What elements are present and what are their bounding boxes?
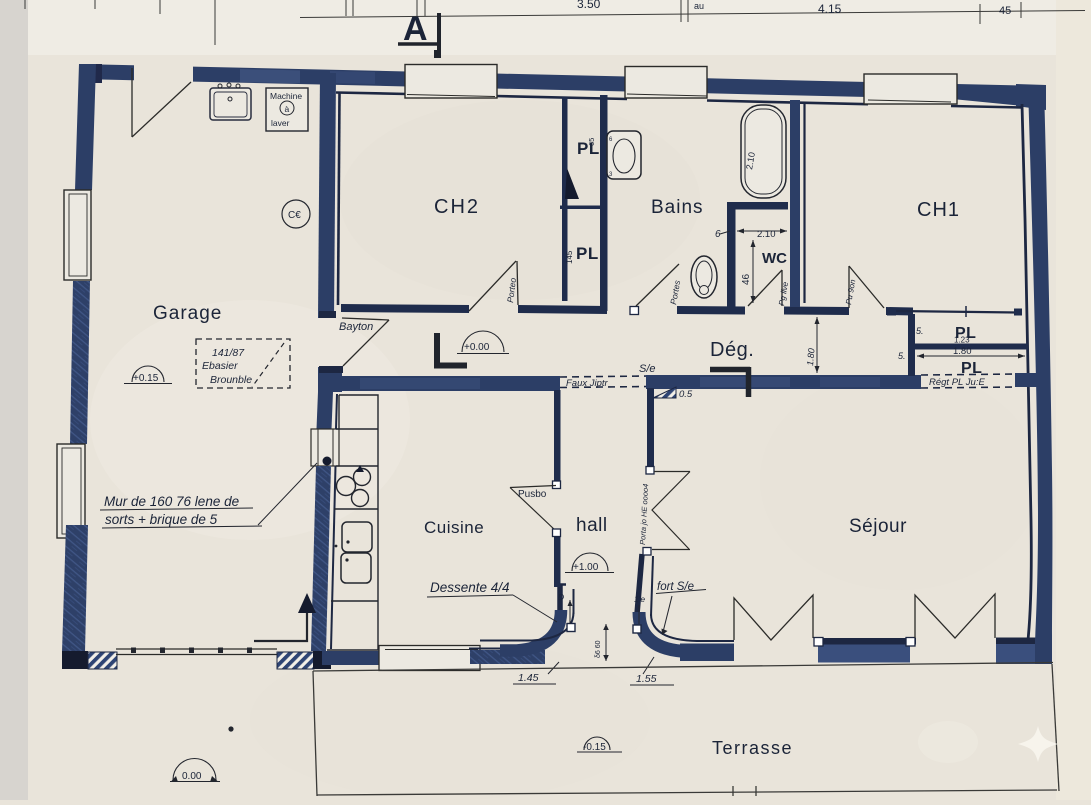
svg-text:D: D — [558, 592, 564, 602]
svg-text:+1.00: +1.00 — [573, 562, 599, 573]
svg-text:WC: WC — [762, 250, 787, 267]
svg-text:au: au — [694, 1, 704, 11]
svg-text:Mur de 160 76 lene de: Mur de 160 76 lene de — [104, 494, 239, 509]
svg-text:0.00: 0.00 — [182, 771, 202, 782]
svg-text:CH1: CH1 — [917, 199, 960, 221]
svg-text:laver: laver — [271, 118, 290, 128]
svg-text:1.23: 1.23 — [954, 336, 970, 345]
svg-text:1'e: 1'e — [634, 594, 645, 604]
svg-text:Pusbo: Pusbo — [518, 489, 547, 500]
svg-text:Régt PL Ju:E: Régt PL Ju:E — [929, 377, 985, 388]
svg-text:3.50: 3.50 — [577, 0, 601, 11]
svg-text:1.45: 1.45 — [518, 672, 539, 684]
svg-text:45: 45 — [999, 5, 1011, 17]
svg-text:5.: 5. — [898, 351, 906, 361]
svg-text:2.10: 2.10 — [757, 229, 776, 240]
svg-text:à: à — [285, 104, 290, 114]
svg-text:-0.15: -0.15 — [583, 742, 606, 753]
svg-text:CH2: CH2 — [434, 196, 480, 218]
svg-text:1.55: 1.55 — [636, 673, 657, 685]
svg-text:Cuisine: Cuisine — [424, 518, 484, 537]
svg-text:Ebasier: Ebasier — [202, 360, 238, 372]
svg-text:6: 6 — [715, 229, 721, 240]
svg-text:δ6 60: δ6 60 — [595, 640, 602, 658]
svg-text:1.80: 1.80 — [953, 346, 972, 357]
svg-text:S/e: S/e — [639, 363, 656, 375]
svg-text:Bayton: Bayton — [339, 321, 373, 333]
svg-text:Terrasse: Terrasse — [712, 738, 793, 758]
svg-text:65: 65 — [587, 138, 596, 146]
svg-text:Dessente 4/4: Dessente 4/4 — [430, 580, 510, 595]
svg-text:PL: PL — [961, 360, 982, 377]
svg-text:Bains: Bains — [651, 197, 704, 218]
svg-text:hall: hall — [576, 515, 608, 536]
svg-text:46: 46 — [741, 273, 752, 285]
svg-text:141/87: 141/87 — [212, 347, 245, 359]
svg-text:+0.00: +0.00 — [464, 342, 490, 353]
svg-text:0.5: 0.5 — [679, 389, 693, 400]
svg-text:+0.15: +0.15 — [133, 373, 159, 384]
svg-text:4.15: 4.15 — [818, 2, 842, 16]
svg-text:1.80: 1.80 — [805, 348, 816, 366]
svg-text:Séjour: Séjour — [849, 516, 907, 537]
svg-text:sorts + brique de 5: sorts + brique de 5 — [105, 512, 218, 527]
svg-text:5.: 5. — [916, 326, 924, 336]
svg-text:PL: PL — [576, 244, 599, 263]
svg-text:Dég.: Dég. — [710, 339, 754, 361]
svg-text:Faux Jiptr: Faux Jiptr — [566, 378, 609, 389]
svg-text:C€: C€ — [288, 210, 301, 221]
svg-text:Garage: Garage — [153, 303, 222, 324]
svg-text:Machine: Machine — [270, 91, 302, 101]
svg-text:Brounble: Brounble — [210, 374, 252, 386]
svg-text:145: 145 — [565, 250, 574, 264]
